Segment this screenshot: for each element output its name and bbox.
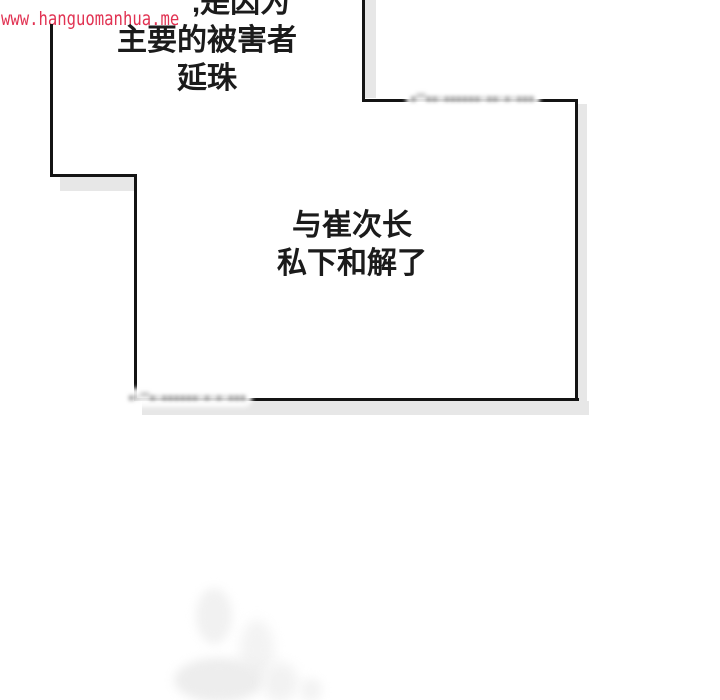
faint-sketch-mark	[262, 662, 298, 700]
faint-sketch-mark	[174, 658, 264, 700]
blurred-credit-bottom-left: ▪·''▪·▪▪▪▪▪▪·▪·▪·▪▪▪	[124, 388, 252, 407]
panel-border-topright-vertical	[362, 0, 365, 101]
speech-panel-line-1: 与崔次长	[232, 207, 472, 245]
panel-border-right-vertical	[575, 99, 578, 401]
speech-panel-line-2: 私下和解了	[232, 245, 472, 283]
speech-bubble-top: ,是因为 主要的被害者 延珠	[60, 0, 354, 98]
panel-shadow-left-step	[60, 177, 136, 191]
faint-sketch-mark	[196, 588, 232, 644]
speech-bubble-panel: 与崔次长 私下和解了	[232, 207, 472, 283]
panel-shadow-top-right-vertical	[365, 0, 376, 98]
speech-top-line-3: 延珠	[60, 60, 354, 98]
panel-border-left-upper-vertical	[50, 24, 53, 177]
blurred-credit-top-right: ▪''▪▪·▪▪▪▪▪▪·▪▪·▪·▪▪▪	[406, 89, 540, 108]
manhwa-page: www.hanguomanhua.me ,是因为 主要的被害者 延珠 ▪''▪▪…	[0, 0, 720, 700]
panel-border-step-horizontal	[50, 174, 137, 177]
panel-border-left-vertical	[134, 174, 137, 401]
faint-sketch-mark	[300, 678, 322, 700]
panel-shadow-right-vertical	[578, 104, 587, 404]
speech-top-line-1: ,是因为	[192, 0, 290, 22]
speech-top-line-2: 主要的被害者	[60, 22, 354, 60]
